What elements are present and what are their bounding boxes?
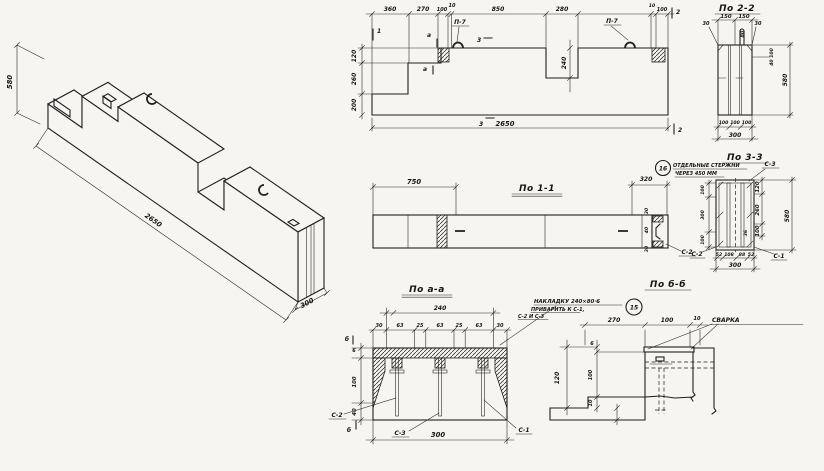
lifting-loop-icon: [625, 43, 635, 49]
s33-dim: 260: [755, 204, 761, 216]
s11-dim: 30: [644, 207, 650, 214]
s33-total-width: 300: [729, 262, 742, 269]
saa-dim: 25: [417, 323, 424, 329]
position-ref: 15: [630, 305, 638, 312]
s11-dim: 40: [644, 226, 650, 233]
section-title: По б-б: [650, 279, 686, 290]
section-title: По 3-3: [727, 153, 763, 163]
cut-mark: 2: [676, 9, 680, 16]
saa-dim: 40: [352, 408, 358, 416]
cut-mark: 3: [479, 121, 483, 128]
saa-dim: 63: [397, 323, 404, 329]
s22-dim: 100: [742, 120, 752, 126]
lifting-loop-icon: [453, 43, 463, 49]
s33-dim: 100: [700, 234, 706, 244]
saa-dim: 30: [497, 323, 504, 329]
s33-dim: 52: [748, 252, 754, 258]
mesh-label: С-2: [331, 412, 342, 419]
elev-dim: 120: [351, 50, 358, 63]
elev-dim: 10: [449, 3, 456, 9]
s33-dim: 300: [700, 209, 706, 219]
saa-dim: 63: [437, 323, 444, 329]
elev-total-length: 2650: [496, 120, 515, 128]
s33-dim: 52: [716, 252, 722, 258]
drawing-canvas: 580 2650 300 360 270 100 10 850 280 10 1…: [0, 0, 824, 471]
blueprint-sheet: 580 2650 300 360 270 100 10 850 280 10 1…: [0, 0, 824, 471]
elev-dim: 270: [417, 6, 430, 13]
note-text: ЧЕРЕЗ 450 ММ: [675, 171, 717, 177]
elev-dim: 10: [649, 3, 656, 9]
s22-dim: 100: [719, 120, 729, 126]
section-title: По а-а: [409, 285, 445, 295]
s33-dim: 100: [700, 184, 706, 194]
s11-dim: 30: [644, 245, 650, 252]
elev-dim: 100: [437, 7, 448, 13]
cut-mark: а: [427, 32, 431, 39]
note-text: ОТДЕЛЬНЫЕ СТЕРЖНИ: [673, 163, 740, 169]
loop-mark-label: П-7: [454, 19, 467, 26]
saa-dim: 240: [434, 305, 447, 312]
elev-dim: 100: [657, 7, 668, 13]
sbb-dim: 10: [588, 399, 594, 406]
elev-dim: 360: [384, 6, 397, 13]
cut-mark: 3: [477, 37, 481, 44]
cut-mark: 1: [377, 28, 381, 35]
s22-dim: 80: [740, 30, 746, 37]
s22-total: 300: [729, 132, 742, 139]
mesh-label: С-1: [773, 253, 784, 260]
sbb-dim: 120: [554, 372, 561, 385]
sbb-dim: 6: [590, 341, 594, 347]
s22-dim: 100: [730, 120, 740, 126]
cut-mark: б: [345, 336, 349, 343]
saa-dim: 100: [352, 376, 358, 388]
mesh-label: С-3: [764, 161, 775, 168]
embedded-plate: [438, 48, 449, 62]
s22-dim: 30: [703, 21, 710, 27]
sbb-dim: 270: [608, 317, 621, 324]
s33-dim: 88: [739, 252, 746, 258]
s22-dim: 150: [720, 14, 732, 20]
s22-dim: 40 100: [769, 47, 775, 65]
saa-total: 300: [431, 431, 445, 439]
saa-dim: 30: [376, 323, 383, 329]
elev-dim: 280: [556, 6, 569, 13]
section-title: По 2-2: [719, 4, 755, 14]
plate-through: [437, 215, 447, 248]
sbb-dim: 100: [661, 317, 674, 324]
s11-dim: 320: [640, 176, 653, 183]
sbb-dim: 100: [588, 369, 594, 380]
cut-mark: а: [423, 66, 427, 73]
section-2-2: По 2-2 150 150 30 30 80 40 100 580 100 1…: [703, 4, 793, 142]
s33-dim: 100: [755, 225, 761, 237]
s22-dim: 150: [738, 14, 750, 20]
elev-recess-dim: 240: [561, 57, 568, 70]
mesh-label: С-3: [394, 430, 405, 437]
s22-dim: 30: [755, 21, 762, 27]
mesh-label: С-2: [691, 251, 702, 258]
anchor-detail: [656, 357, 664, 361]
saa-dim: 6: [352, 348, 356, 354]
s33-dim: 36: [743, 229, 749, 236]
elev-dim: 260: [351, 73, 358, 86]
iso-dim-height: 580: [6, 75, 14, 89]
s33-dim: 120: [755, 181, 761, 193]
section-title: По 1-1: [519, 184, 555, 194]
isometric-view: 580 2650 300: [6, 43, 330, 323]
elevation-view: 360 270 100 10 850 280 10 100 120 260 20…: [351, 3, 682, 134]
mesh-label: С-1: [518, 427, 529, 434]
cut-mark: б: [347, 427, 351, 434]
note-text: НАКЛАДКУ 240×80·6: [534, 299, 600, 305]
s11-dim: 750: [407, 178, 421, 186]
elev-dim: 850: [492, 6, 505, 13]
position-ref: 16: [659, 166, 667, 173]
section-1-1: По 1-1 750 320 16 ОТДЕЛЬНЫЕ СТЕРЖНИ ЧЕРЕ…: [371, 161, 748, 257]
note-text: ПРИВАРИТЬ К С-1,: [531, 307, 585, 313]
loop-mark-label: П-7: [606, 18, 619, 25]
s33-total-height: 580: [784, 210, 791, 223]
weld-label: СВАРКА: [712, 317, 740, 324]
saa-dim: 25: [456, 323, 463, 329]
sbb-dim: 10: [694, 316, 701, 322]
s22-height: 580: [782, 74, 789, 87]
embedded-plate: [652, 48, 665, 62]
s33-dim: 108: [724, 252, 734, 258]
elev-dim: 200: [351, 99, 358, 112]
cut-mark: 2: [678, 127, 682, 134]
iso-dim-length: 2650: [143, 212, 163, 230]
saa-dim: 63: [476, 323, 483, 329]
